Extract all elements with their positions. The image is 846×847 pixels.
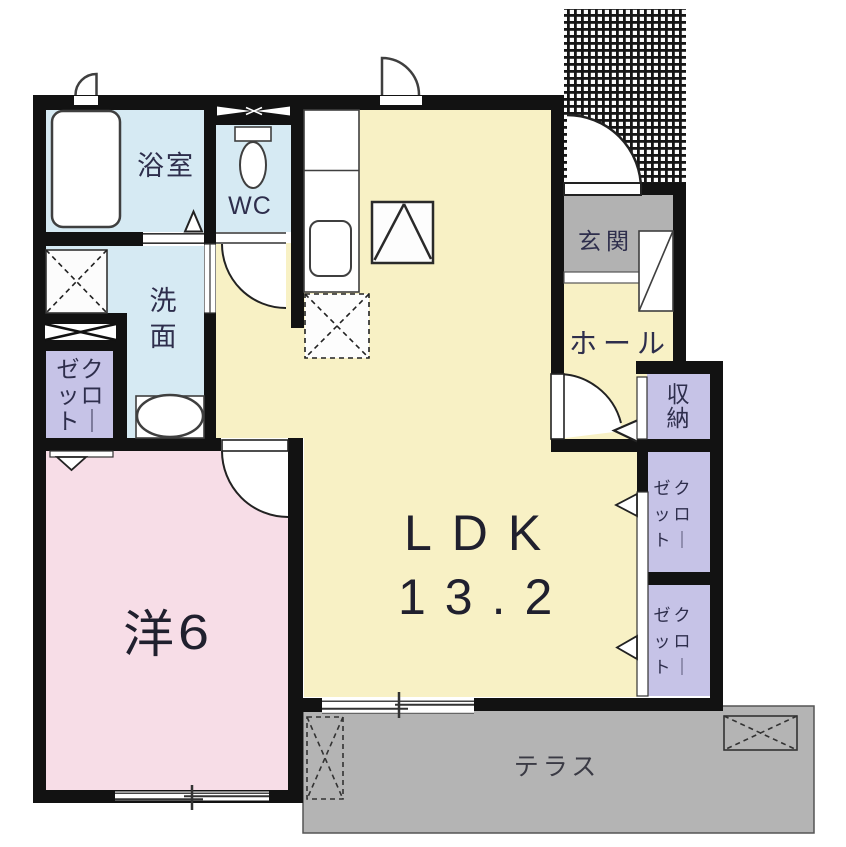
svg-text:ト: ト: [57, 408, 80, 434]
svg-text:ク: ク: [674, 606, 691, 625]
svg-text:洋: 洋: [123, 606, 174, 663]
svg-text:テラス: テラス: [514, 753, 601, 781]
svg-text:ッ: ッ: [654, 505, 671, 524]
svg-text:ッ: ッ: [654, 632, 671, 651]
svg-text:ロ: ロ: [674, 632, 691, 651]
svg-text:WC: WC: [228, 192, 272, 220]
svg-text:ロ: ロ: [674, 505, 691, 524]
svg-text:納: 納: [667, 405, 690, 431]
svg-text:ホール: ホール: [569, 328, 671, 359]
svg-text:｜: ｜: [674, 531, 691, 550]
svg-text:収: 収: [667, 381, 690, 407]
svg-text:ロ: ロ: [81, 382, 104, 408]
svg-text:面: 面: [150, 322, 177, 352]
svg-text:ト: ト: [654, 658, 671, 677]
svg-text:LDK: LDK: [404, 505, 561, 561]
svg-text:｜: ｜: [81, 408, 104, 434]
svg-text:ゼ: ゼ: [654, 479, 671, 498]
svg-text:13.2: 13.2: [398, 569, 571, 625]
svg-text:洗: 洗: [150, 286, 177, 316]
svg-text:ゼ: ゼ: [57, 356, 80, 382]
svg-text:ト: ト: [654, 531, 671, 550]
svg-text:ク: ク: [81, 356, 104, 382]
svg-text:6: 6: [178, 606, 209, 660]
svg-text:ク: ク: [674, 479, 691, 498]
svg-text:玄関: 玄関: [578, 228, 634, 254]
svg-text:ゼ: ゼ: [654, 606, 671, 625]
svg-text:ッ: ッ: [57, 382, 80, 408]
svg-text:浴室: 浴室: [137, 151, 195, 181]
svg-text:｜: ｜: [674, 658, 691, 677]
